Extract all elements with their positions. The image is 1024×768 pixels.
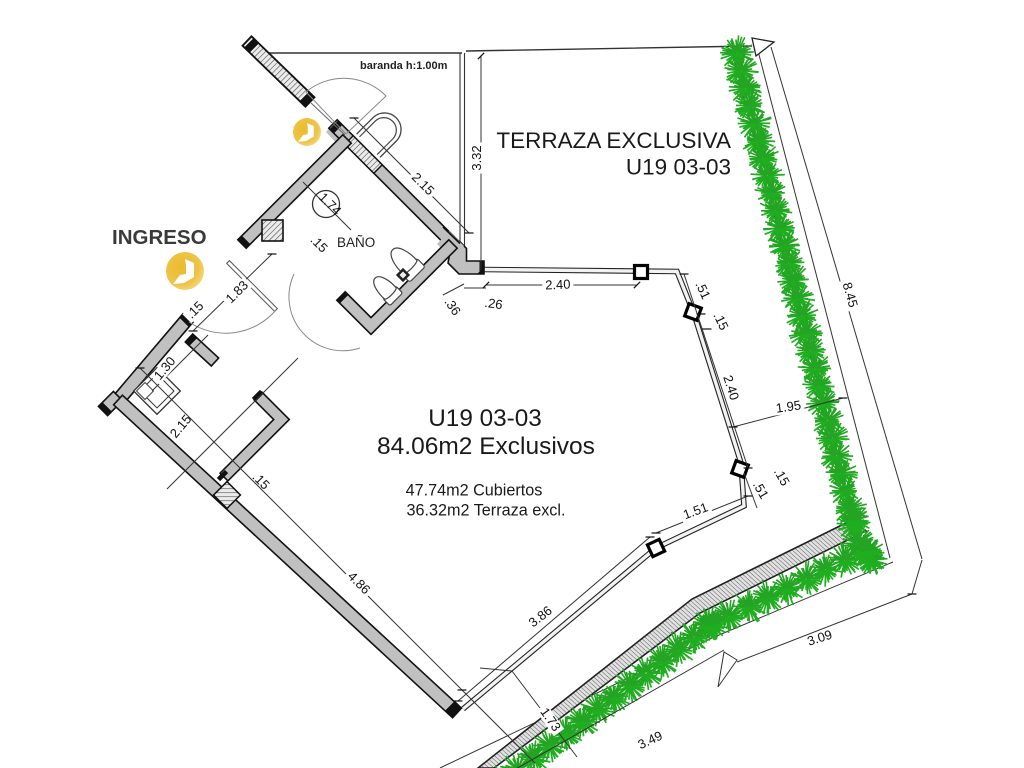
svg-text:BAÑO: BAÑO — [337, 235, 375, 250]
svg-text:baranda h:1.00m: baranda h:1.00m — [360, 60, 448, 72]
svg-text:3.32: 3.32 — [469, 145, 484, 170]
svg-text:U19 03-03: U19 03-03 — [428, 405, 541, 432]
svg-text:INGRESO: INGRESO — [112, 226, 207, 249]
svg-text:.26: .26 — [484, 295, 504, 312]
svg-text:U19 03-03: U19 03-03 — [626, 155, 731, 180]
svg-text:36.32m2 Terraza excl.: 36.32m2 Terraza excl. — [407, 502, 566, 520]
svg-text:2.40: 2.40 — [545, 277, 571, 293]
svg-text:84.06m2 Exclusivos: 84.06m2 Exclusivos — [377, 433, 595, 460]
svg-text:TERRAZA EXCLUSIVA: TERRAZA EXCLUSIVA — [496, 128, 731, 153]
svg-text:47.74m2 Cubiertos: 47.74m2 Cubiertos — [406, 482, 543, 500]
